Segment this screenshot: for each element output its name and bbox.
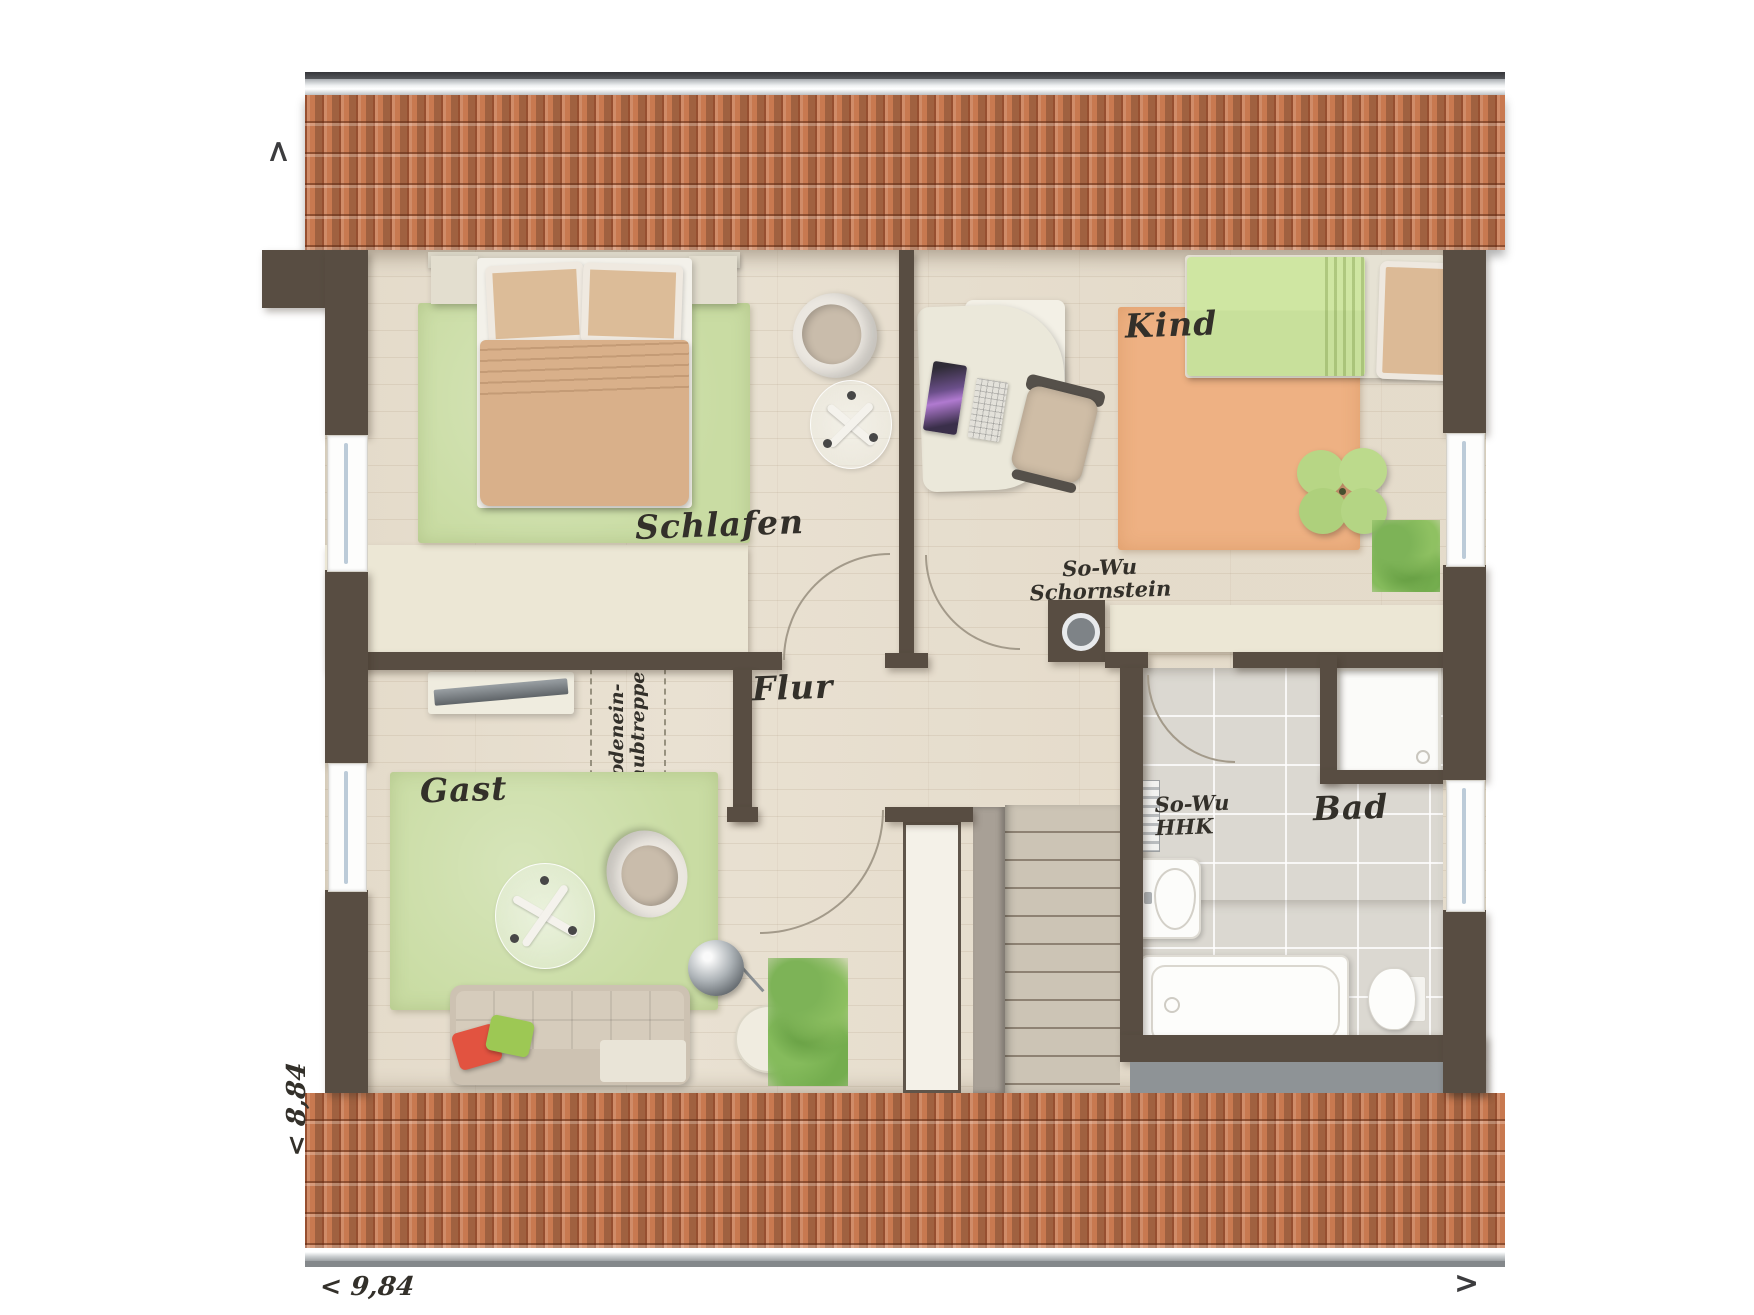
room-label-schlafen: Schlafen bbox=[634, 502, 804, 547]
window-glass bbox=[1462, 788, 1466, 904]
sofa-chaise bbox=[600, 1040, 686, 1082]
heater-note-line1: So-Wu bbox=[1154, 791, 1230, 817]
knee-wall-schlafen bbox=[325, 545, 748, 652]
door-arc-gast bbox=[760, 810, 884, 934]
shower-tray bbox=[1337, 668, 1441, 775]
exterior-wall-right bbox=[1443, 250, 1486, 433]
basin-tap bbox=[1144, 892, 1152, 904]
wall-bad-bottom bbox=[1120, 1035, 1486, 1062]
window-glass bbox=[344, 771, 348, 884]
table-foot bbox=[823, 439, 832, 448]
chimney-note-line2: Schornstein bbox=[1015, 576, 1186, 605]
roof-gutter-top bbox=[305, 79, 1505, 95]
wall-cap bbox=[885, 653, 928, 668]
roof-ridge-line bbox=[305, 72, 1505, 79]
wall-gast-vertical bbox=[733, 670, 752, 820]
duvet bbox=[480, 340, 689, 506]
pillow-right bbox=[581, 262, 684, 345]
toilet bbox=[1368, 968, 1426, 1028]
exterior-wall-left bbox=[325, 250, 368, 435]
exterior-wall-left bbox=[325, 890, 368, 1093]
wall-shelf bbox=[428, 672, 574, 714]
staircase bbox=[1005, 805, 1120, 1093]
roof-tiles-top bbox=[305, 95, 1505, 250]
knee-wall-kind bbox=[1110, 605, 1443, 652]
window-gast bbox=[328, 763, 367, 892]
table-foot bbox=[568, 926, 577, 935]
stair-stringer bbox=[973, 807, 1005, 1093]
plant-kind bbox=[1372, 520, 1440, 592]
wall-stairs-top bbox=[885, 807, 973, 822]
terrace-slab bbox=[1130, 1062, 1455, 1093]
table-foot bbox=[847, 391, 856, 400]
basin-bowl bbox=[1154, 868, 1196, 930]
wall-bad-top bbox=[1233, 652, 1443, 668]
table-foot bbox=[540, 876, 549, 885]
door-arc-schlafen bbox=[783, 553, 890, 660]
wall-bad-top-stub bbox=[1105, 652, 1148, 668]
tub-drain bbox=[1164, 997, 1180, 1013]
pillow-left bbox=[485, 261, 587, 346]
dimension-width: < 9,84 bbox=[318, 1272, 415, 1302]
duvet-folds bbox=[480, 340, 689, 396]
wall-shower-bottom bbox=[1320, 770, 1443, 784]
nightstand-left bbox=[431, 256, 478, 304]
room-label-kind: Kind bbox=[1124, 303, 1218, 345]
window-bad bbox=[1446, 780, 1485, 912]
washbasin bbox=[1140, 858, 1201, 939]
kid-duvet-folds bbox=[1325, 257, 1365, 376]
table-foot bbox=[869, 433, 878, 442]
pouf-petal bbox=[1299, 488, 1347, 534]
toilet-bowl bbox=[1368, 968, 1416, 1030]
chimney-flue bbox=[1062, 613, 1100, 651]
glass-table-landing bbox=[810, 380, 892, 469]
roof-strip-top bbox=[305, 72, 1505, 250]
chair-cushion bbox=[1009, 384, 1100, 485]
chimney-note: So-Wu Schornstein bbox=[1014, 553, 1186, 605]
nightstand-right bbox=[689, 256, 737, 304]
wall-shower-left bbox=[1320, 655, 1337, 782]
shelf-board bbox=[434, 678, 569, 706]
table-foot bbox=[510, 934, 519, 943]
room-label-bad: Bad bbox=[1312, 787, 1389, 829]
direction-arrow-bottom-right: > bbox=[1454, 1266, 1479, 1301]
wall-flur-horizontal bbox=[325, 652, 782, 670]
floor-lamp-shade bbox=[688, 940, 744, 996]
room-label-flur: Flur bbox=[751, 667, 834, 709]
roof-tiles-bottom bbox=[305, 1093, 1505, 1248]
room-label-gast: Gast bbox=[419, 768, 508, 810]
plant-gast bbox=[768, 958, 848, 1086]
pouf-button bbox=[1339, 488, 1346, 495]
glass-table-gast bbox=[495, 863, 595, 969]
wall-bad-left bbox=[1120, 668, 1143, 1035]
chair-seat bbox=[613, 837, 687, 914]
table-leg bbox=[521, 884, 569, 948]
floor-plan-sheet: Schlafen bbox=[0, 0, 1754, 1315]
lounge-chair-landing bbox=[779, 279, 891, 392]
window-glass bbox=[1462, 441, 1466, 559]
window-glass bbox=[344, 443, 348, 564]
door-arc-kind bbox=[925, 555, 1020, 650]
roof-eave-line bbox=[305, 1261, 1505, 1267]
window-kind bbox=[1446, 433, 1485, 567]
dimension-depth: < 8,84 bbox=[282, 1061, 312, 1158]
wall-cap bbox=[727, 807, 758, 822]
heater-note-line2: HHK bbox=[1155, 814, 1231, 840]
chair-seat bbox=[792, 295, 870, 374]
roof-strip-bottom bbox=[305, 1093, 1505, 1270]
direction-arrow-top: > bbox=[261, 139, 296, 164]
wall-schlafen-kind bbox=[899, 250, 914, 653]
exterior-wall-right bbox=[1443, 910, 1486, 1093]
stair-bulkhead bbox=[903, 822, 961, 1093]
heater-note: So-Wu HHK bbox=[1154, 791, 1230, 840]
roof-gutter-bottom bbox=[305, 1252, 1505, 1261]
exterior-wall-right bbox=[1443, 565, 1486, 780]
shower-drain bbox=[1416, 750, 1430, 764]
window-schlafen bbox=[327, 435, 368, 572]
floor-plan: Schlafen bbox=[325, 250, 1486, 1093]
exterior-wall-left bbox=[325, 570, 368, 763]
